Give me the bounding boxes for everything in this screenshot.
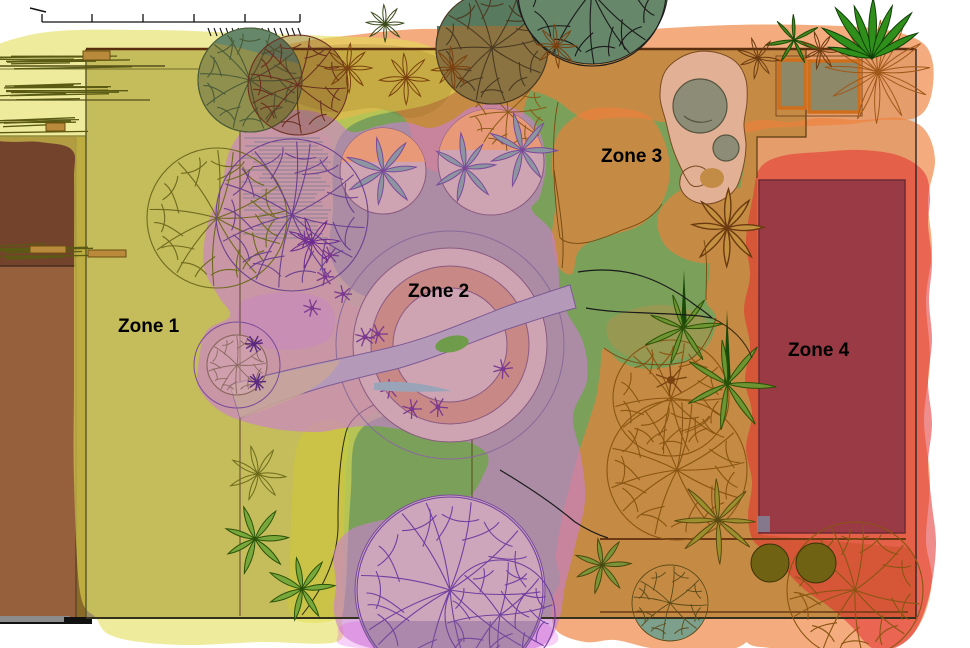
svg-text:Zone 3: Zone 3 [601,146,662,167]
svg-text:Zone 2: Zone 2 [408,281,469,302]
svg-text:Zone 1: Zone 1 [118,316,180,337]
svg-text:Zone 4: Zone 4 [788,340,850,361]
